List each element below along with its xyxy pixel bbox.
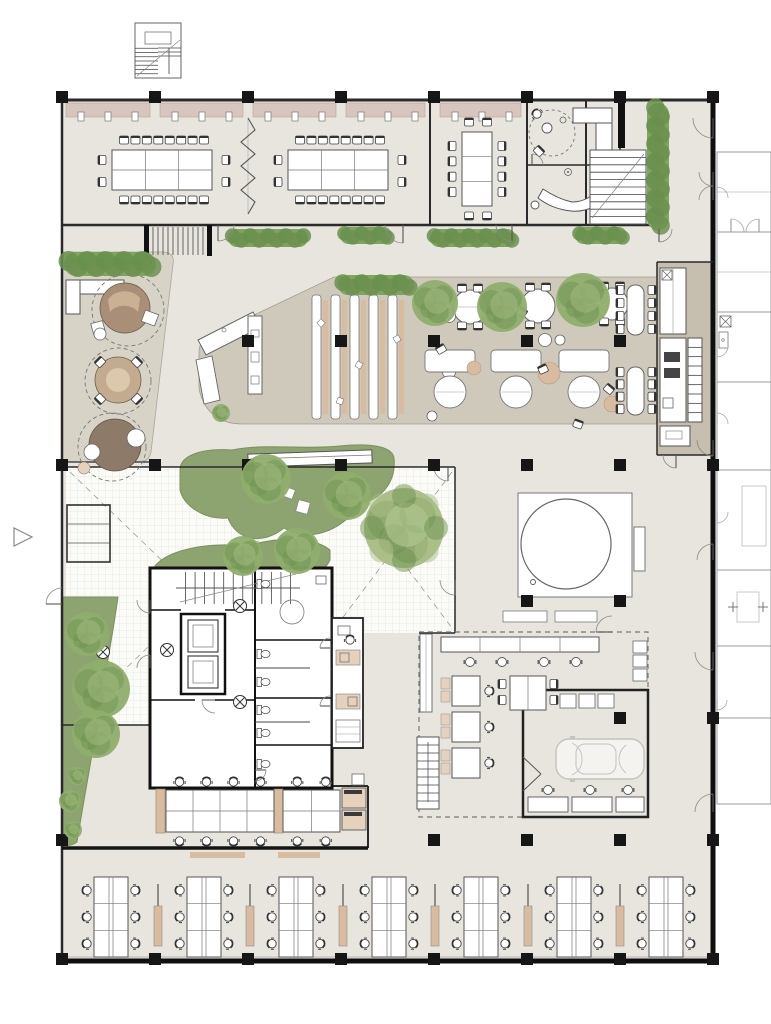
cafe-bench <box>361 300 366 414</box>
planter-hedge <box>646 98 670 234</box>
kitchen-counter <box>660 338 686 422</box>
ws-cabinet <box>441 691 450 702</box>
meeting-table <box>462 132 492 206</box>
planter-strip <box>278 852 320 858</box>
kitchen-low-unit <box>660 426 690 446</box>
external-stair-landing <box>145 32 171 44</box>
column <box>428 834 440 846</box>
tree <box>65 612 109 656</box>
column <box>428 459 440 471</box>
ws-cabinet <box>441 763 450 774</box>
stair-wall <box>207 225 212 256</box>
bush <box>59 790 81 812</box>
coffee-table <box>542 123 552 133</box>
column <box>614 91 626 103</box>
desk-cluster <box>637 877 694 957</box>
pouf-round <box>84 444 100 460</box>
lounge-sofa-l <box>66 280 80 314</box>
cafe-table-strip <box>388 295 397 419</box>
printer-dark <box>344 812 362 816</box>
wall-shelf <box>503 611 547 622</box>
cafe-bench <box>380 300 385 414</box>
stair-wall <box>144 225 149 256</box>
workbench <box>616 797 644 812</box>
high-table <box>627 367 644 415</box>
floor-plan-page <box>0 0 771 1024</box>
tree <box>223 536 263 576</box>
conference-table <box>288 150 388 190</box>
desk-cluster <box>175 877 232 957</box>
storage-box <box>560 694 576 708</box>
equipment-box <box>720 316 731 327</box>
planter-hedge <box>427 228 520 247</box>
toilet <box>257 580 270 589</box>
column <box>335 91 347 103</box>
toilet <box>257 706 270 715</box>
stove <box>664 352 680 362</box>
planter-strip <box>190 852 245 858</box>
column <box>614 834 626 846</box>
kitchen-shelving <box>688 338 702 422</box>
toilet <box>257 678 270 687</box>
pouf-round <box>94 328 106 340</box>
desk-cluster <box>82 877 139 957</box>
tree <box>274 528 320 574</box>
column <box>56 91 68 103</box>
cafe-counter <box>248 316 262 394</box>
ws-table <box>510 676 546 710</box>
ws-desk <box>452 712 480 742</box>
wing-room <box>717 382 771 470</box>
ws-kitchenette-box <box>633 655 647 667</box>
storage-divider <box>274 789 283 833</box>
pouf-round <box>555 335 565 345</box>
pouf-round <box>427 411 437 421</box>
tree <box>477 282 527 332</box>
column <box>521 953 533 965</box>
planter-hedge <box>572 226 630 244</box>
column <box>521 595 533 607</box>
column <box>707 953 719 965</box>
side-table-white <box>352 774 364 785</box>
ws-desk <box>452 676 480 706</box>
external-stair-break <box>137 40 180 76</box>
paver <box>296 500 311 515</box>
ws-cabinet <box>441 727 450 738</box>
round-table-top <box>106 368 130 392</box>
column <box>56 953 68 965</box>
work-pod <box>491 350 541 372</box>
shaft-symbol <box>234 696 247 709</box>
shaft-symbol <box>234 600 247 613</box>
column <box>428 335 440 347</box>
cafe-table-strip <box>312 295 321 419</box>
tree <box>72 710 120 758</box>
storage-cabinet <box>156 789 165 833</box>
column <box>521 834 533 846</box>
column <box>242 953 254 965</box>
column <box>521 459 533 471</box>
column <box>335 459 347 471</box>
tree <box>412 280 458 326</box>
pouf-tan <box>467 361 481 375</box>
desk-cluster <box>360 877 417 957</box>
column <box>614 335 626 347</box>
planter-hedge <box>59 251 162 277</box>
stool-round <box>531 201 539 209</box>
pouf-tan <box>78 462 90 474</box>
lounge-sofa <box>573 108 612 123</box>
pavilion-bench <box>634 527 645 571</box>
round-lounge-table <box>100 283 150 333</box>
conference-table <box>112 150 212 190</box>
column <box>521 335 533 347</box>
entrance-arrow <box>14 528 32 546</box>
column <box>335 335 347 347</box>
wall-shelf <box>555 611 597 622</box>
ws-cabinet <box>441 678 450 689</box>
desk-cluster <box>545 877 602 957</box>
work-pod <box>559 350 609 372</box>
planter-hedge <box>337 226 395 244</box>
high-table <box>627 285 644 335</box>
column <box>614 712 626 724</box>
toilet <box>257 729 270 738</box>
bush <box>68 767 86 785</box>
stair-upper <box>590 150 646 224</box>
wing-room <box>717 646 771 718</box>
column <box>428 953 440 965</box>
workbench <box>528 797 568 812</box>
ws-cabinet <box>441 714 450 725</box>
kitchen-equipment <box>662 270 672 280</box>
planter-hedge <box>334 274 417 296</box>
wall-black-seg <box>618 100 625 148</box>
column <box>707 712 719 724</box>
column <box>149 459 161 471</box>
cafe-bench <box>323 300 328 414</box>
wing-room <box>717 718 771 804</box>
stool-round <box>539 334 552 347</box>
storage-box <box>579 694 595 708</box>
column <box>521 91 533 103</box>
planter-hedge <box>225 228 311 247</box>
printer-dark <box>344 790 362 794</box>
column <box>242 91 254 103</box>
tree <box>72 660 130 718</box>
desk-cluster <box>452 877 509 957</box>
column <box>614 595 626 607</box>
bush <box>212 404 230 422</box>
tree <box>241 454 291 504</box>
column <box>707 459 719 471</box>
ceiling-point-dot <box>567 171 569 173</box>
column <box>335 953 347 965</box>
column <box>149 953 161 965</box>
bush <box>64 821 82 839</box>
toilet <box>257 650 270 659</box>
column <box>56 459 68 471</box>
column <box>614 459 626 471</box>
column <box>707 91 719 103</box>
ws-desk <box>452 748 480 778</box>
parked-car <box>556 736 644 782</box>
ws-kitchenette-box <box>633 669 647 681</box>
cafe-table-strip <box>369 295 378 419</box>
tree <box>556 273 610 327</box>
column <box>149 91 161 103</box>
shaft-symbol <box>161 644 174 657</box>
column <box>428 91 440 103</box>
workbench <box>572 797 612 812</box>
cafe-bench <box>342 300 347 414</box>
storage-box <box>598 694 614 708</box>
column <box>614 953 626 965</box>
small-desk <box>338 626 350 635</box>
window-band <box>66 103 521 121</box>
floor-plan-drawing <box>0 0 771 1024</box>
desk-cluster <box>267 877 324 957</box>
toilet <box>257 760 270 769</box>
ws-cabinet <box>441 750 450 761</box>
tree <box>323 472 371 520</box>
column <box>707 834 719 846</box>
ws-kitchenette-box <box>633 641 647 653</box>
tree-large <box>360 484 448 572</box>
cafe-table-strip <box>350 295 359 419</box>
kitchenette-counter <box>336 650 360 665</box>
stove <box>664 368 680 378</box>
column <box>242 335 254 347</box>
door <box>46 588 62 604</box>
cafe-bench <box>399 300 404 414</box>
pouf-round <box>127 429 145 447</box>
